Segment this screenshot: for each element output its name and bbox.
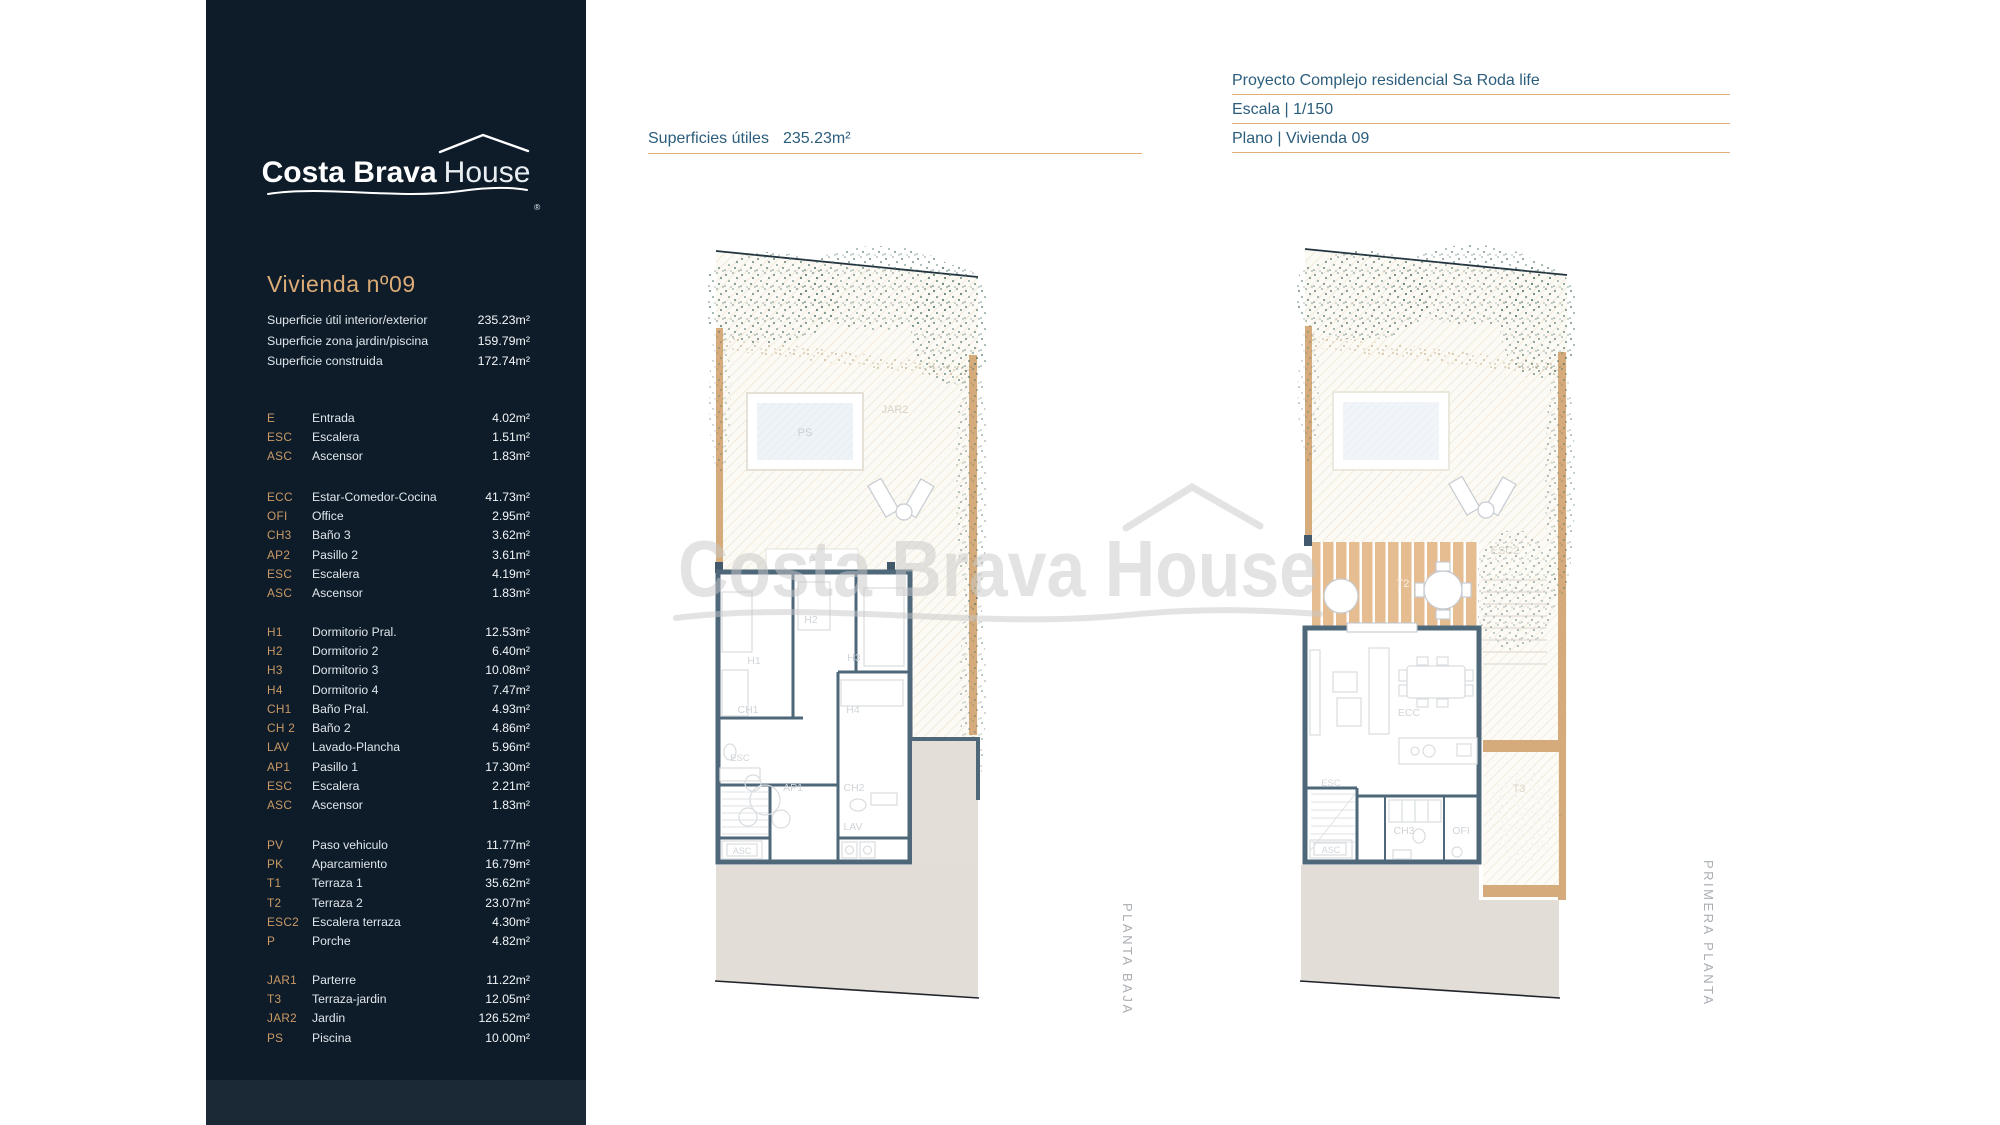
driveway (715, 865, 979, 998)
summary-row: Superficie construida 172.74m² (267, 351, 530, 372)
surface-row: JAR1 Parterre 11.22m² (267, 970, 530, 989)
room-label: Lavado-Plancha (312, 740, 400, 754)
room-code: H1 (267, 625, 312, 639)
room-label: Pasillo 2 (312, 548, 358, 562)
terrace-t2: T2 (1304, 535, 1478, 626)
surface-row: H4 Dormitorio 4 7.47m² (267, 680, 530, 699)
room-area: 4.19m² (492, 567, 530, 581)
room-label-esc: ESC (1321, 778, 1341, 789)
pool (1333, 392, 1449, 470)
room-area: 1.83m² (492, 586, 530, 600)
useful-surfaces-value: 235.23m² (783, 130, 851, 147)
room-code: ECC (267, 490, 312, 504)
surface-row: CH1 Baño Pral. 4.93m² (267, 699, 530, 718)
room-area: 10.00m² (485, 1031, 530, 1045)
room-code: PK (267, 857, 312, 871)
surface-row: PV Paso vehiculo 11.77m² (267, 835, 530, 854)
surface-row: LAV Lavado-Plancha 5.96m² (267, 738, 530, 757)
surface-row: ESC Escalera 4.19m² (267, 564, 530, 583)
room-label: Ascensor (312, 449, 363, 463)
t3-label: T3 (1513, 783, 1526, 795)
surface-row: P Porche 4.82m² (267, 931, 530, 950)
room-label-ecc: ECC (1398, 707, 1421, 719)
room-code: ASC (267, 798, 312, 812)
porch-label: P (809, 555, 815, 566)
room-label: Entrada (312, 411, 355, 425)
room-label: Terraza-jardin (312, 992, 387, 1006)
room-code: P (267, 934, 312, 948)
room-area: 4.86m² (492, 721, 530, 735)
room-label-ch2: CH2 (843, 782, 864, 794)
room-label-lav: LAV (843, 821, 862, 833)
page-title: Vivienda nº09 (267, 271, 416, 298)
room-area: 23.07m² (485, 896, 530, 910)
room-label: Dormitorio 2 (312, 644, 378, 658)
room-label: Porche (312, 934, 351, 948)
surface-group-living: ECC Estar-Comedor-Cocina 41.73m² OFI Off… (267, 487, 530, 603)
surface-row: CH 2 Baño 2 4.86m² (267, 718, 530, 737)
room-label: Baño 2 (312, 721, 351, 735)
room-area: 1.51m² (492, 430, 530, 444)
brand-sidebar: Costa BravaHouse ® Vivienda nº09 Superfi… (206, 0, 586, 1125)
room-label: Piscina (312, 1031, 351, 1045)
room-label: Office (312, 509, 344, 523)
surface-row: ASC Ascensor 1.83m² (267, 583, 530, 602)
room-label: Ascensor (312, 586, 363, 600)
room-code: PV (267, 838, 312, 852)
surface-row: OFI Office 2.95m² (267, 506, 530, 525)
room-code: H3 (267, 663, 312, 677)
registered-mark: ® (534, 202, 541, 212)
room-label-h4: H4 (846, 704, 860, 716)
room-label: Dormitorio 3 (312, 663, 378, 677)
room-code: AP1 (267, 760, 312, 774)
summary-value: 172.74m² (478, 354, 530, 368)
room-area: 10.08m² (485, 663, 530, 677)
surface-row: T1 Terraza 1 35.62m² (267, 874, 530, 893)
room-label-asc: ASC (733, 846, 752, 856)
scale-info: Escala | 1/150 (1232, 101, 1730, 124)
room-label-ch3: CH3 (1393, 825, 1414, 837)
summary-label: Superficie útil interior/exterior (267, 313, 427, 327)
room-area: 1.83m² (492, 798, 530, 812)
summary-row: Superficie zona jardin/piscina 159.79m² (267, 331, 530, 352)
summary-row: Superficie útil interior/exterior 235.23… (267, 310, 530, 331)
room-code: PS (267, 1031, 312, 1045)
room-area: 4.02m² (492, 411, 530, 425)
costa-brava-house-logo: Costa BravaHouse ® (246, 130, 546, 214)
surface-row: ASC Ascensor 1.83m² (267, 796, 530, 815)
surface-row: ESC Escalera 2.21m² (267, 776, 530, 795)
room-code: OFI (267, 509, 312, 523)
floor-plan-planta-baja: PS JAR2 P (708, 240, 986, 1005)
room-area: 2.95m² (492, 509, 530, 523)
surface-row: ESC Escalera 1.51m² (267, 427, 530, 446)
room-code: CH 2 (267, 721, 312, 735)
room-area: 4.30m² (492, 915, 530, 929)
summary-table: Superficie útil interior/exterior 235.23… (267, 310, 530, 372)
room-code: CH3 (267, 528, 312, 542)
room-code: JAR2 (267, 1011, 312, 1025)
room-code: T2 (267, 896, 312, 910)
room-label: Baño Pral. (312, 702, 369, 716)
surface-row: E Entrada 4.02m² (267, 408, 530, 427)
useful-surfaces-header: Superficies útiles235.23m² (648, 130, 1142, 154)
summary-label: Superficie construida (267, 354, 383, 368)
room-area: 126.52m² (479, 1011, 531, 1025)
room-area: 35.62m² (485, 876, 530, 890)
caption-planta-baja: PLANTA BAJA (1120, 903, 1135, 1016)
surface-row: T2 Terraza 2 23.07m² (267, 893, 530, 912)
surface-row: PS Piscina 10.00m² (267, 1028, 530, 1047)
useful-surfaces-label: Superficies útiles (648, 130, 769, 147)
room-code: H2 (267, 644, 312, 658)
room-area: 3.61m² (492, 548, 530, 562)
room-label-ap1: AP1 (783, 782, 803, 794)
room-label: Terraza 1 (312, 876, 363, 890)
room-label-h3: H3 (847, 652, 861, 664)
roof-icon (440, 135, 528, 152)
room-code: CH1 (267, 702, 312, 716)
summary-label: Superficie zona jardin/piscina (267, 334, 428, 348)
surface-row: H1 Dormitorio Pral. 12.53m² (267, 622, 530, 641)
room-area: 12.05m² (485, 992, 530, 1006)
side-patio (910, 739, 980, 865)
terrace-label: T2 (1397, 578, 1410, 590)
roof-icon (1126, 487, 1260, 528)
surface-row: AP2 Pasillo 2 3.61m² (267, 545, 530, 564)
house-first-floor: ECC ESC ASC CH3 OFI (1305, 623, 1479, 862)
room-code: ASC (267, 449, 312, 463)
surface-row: CH3 Baño 3 3.62m² (267, 526, 530, 545)
surface-group-entrance: E Entrada 4.02m² ESC Escalera 1.51m² ASC… (267, 408, 530, 466)
room-code: E (267, 411, 312, 425)
room-area: 11.22m² (486, 973, 530, 987)
surface-group-garden: JAR1 Parterre 11.22m² T3 Terraza-jardin … (267, 970, 530, 1047)
room-label-asc: ASC (1322, 845, 1341, 855)
plan-info: Plano | Vivienda 09 (1232, 130, 1730, 153)
room-label: Baño 3 (312, 528, 351, 542)
room-area: 12.53m² (485, 625, 530, 639)
room-code: ESC (267, 430, 312, 444)
surface-row: ESC2 Escalera terraza 4.30m² (267, 912, 530, 931)
room-label: Escalera (312, 779, 359, 793)
floor-plan-primera-planta: T2 ESC2 (1297, 240, 1575, 1005)
room-label: Dormitorio Pral. (312, 625, 397, 639)
room-label: Parterre (312, 973, 356, 987)
room-label: Aparcamiento (312, 857, 387, 871)
room-label: Jardin (312, 1011, 345, 1025)
room-area: 2.21m² (492, 779, 530, 793)
room-code: ASC (267, 586, 312, 600)
room-code: AP2 (267, 548, 312, 562)
pool-label: PS (798, 427, 813, 439)
room-label-ch1: CH1 (737, 704, 758, 716)
surface-group-exterior: PV Paso vehiculo 11.77m² PK Aparcamiento… (267, 835, 530, 951)
garden-label: JAR2 (882, 404, 909, 416)
room-label: Terraza 2 (312, 896, 363, 910)
room-area: 4.82m² (492, 934, 530, 948)
room-label: Dormitorio 4 (312, 683, 378, 697)
room-label: Paso vehiculo (312, 838, 388, 852)
room-label: Escalera terraza (312, 915, 401, 929)
room-label: Pasillo 1 (312, 760, 358, 774)
surface-group-bedrooms: H1 Dormitorio Pral. 12.53m² H2 Dormitori… (267, 622, 530, 815)
room-area: 5.96m² (492, 740, 530, 754)
room-label: Estar-Comedor-Cocina (312, 490, 437, 504)
room-label-h1: H1 (747, 655, 761, 667)
room-label: Escalera (312, 430, 359, 444)
round-table (1324, 579, 1358, 613)
room-label-h2: H2 (804, 614, 818, 626)
surface-row: T3 Terraza-jardin 12.05m² (267, 989, 530, 1008)
surface-row: PK Aparcamiento 16.79m² (267, 854, 530, 873)
room-code: ESC (267, 567, 312, 581)
room-code: T3 (267, 992, 312, 1006)
room-area: 1.83m² (492, 449, 530, 463)
house-ground-floor: H2 H1 H3 CH1 H4 ESC AP1 CH2 LAV ASC (718, 572, 910, 862)
logo-text: Costa BravaHouse (262, 156, 531, 189)
pool: PS (747, 393, 863, 470)
room-code: ESC (267, 779, 312, 793)
room-code: ESC2 (267, 915, 312, 929)
room-area: 4.93m² (492, 702, 530, 716)
room-label: Ascensor (312, 798, 363, 812)
sliding-door (1347, 623, 1417, 632)
room-label: Escalera (312, 567, 359, 581)
caption-primera-planta: PRIMERA PLANTA (1701, 860, 1716, 1007)
surface-row: ASC Ascensor 1.83m² (267, 447, 530, 466)
room-area: 16.79m² (485, 857, 530, 871)
surface-row: H3 Dormitorio 3 10.08m² (267, 661, 530, 680)
room-area: 7.47m² (492, 683, 530, 697)
esc2-label: ESC2 (1491, 545, 1520, 557)
surface-row: AP1 Pasillo 1 17.30m² (267, 757, 530, 776)
room-label-esc: ESC (730, 753, 750, 764)
summary-value: 159.79m² (478, 334, 530, 348)
project-name: Proyecto Complejo residencial Sa Roda li… (1232, 72, 1730, 95)
room-area: 6.40m² (492, 644, 530, 658)
room-code: LAV (267, 740, 312, 754)
summary-value: 235.23m² (478, 313, 530, 327)
sidebar-footer-band (206, 1080, 586, 1125)
room-area: 41.73m² (485, 490, 530, 504)
room-area: 17.30m² (485, 760, 530, 774)
sheet-info-header: Proyecto Complejo residencial Sa Roda li… (1232, 72, 1730, 159)
room-code: JAR1 (267, 973, 312, 987)
room-code: H4 (267, 683, 312, 697)
room-code: T1 (267, 876, 312, 890)
room-label-ofi: OFI (1452, 825, 1470, 837)
surface-row: JAR2 Jardin 126.52m² (267, 1009, 530, 1028)
room-area: 3.62m² (492, 528, 530, 542)
surface-row: H2 Dormitorio 2 6.40m² (267, 641, 530, 660)
room-area: 11.77m² (486, 838, 530, 852)
surface-row: ECC Estar-Comedor-Cocina 41.73m² (267, 487, 530, 506)
terrace-t3: T3 (1483, 740, 1559, 897)
